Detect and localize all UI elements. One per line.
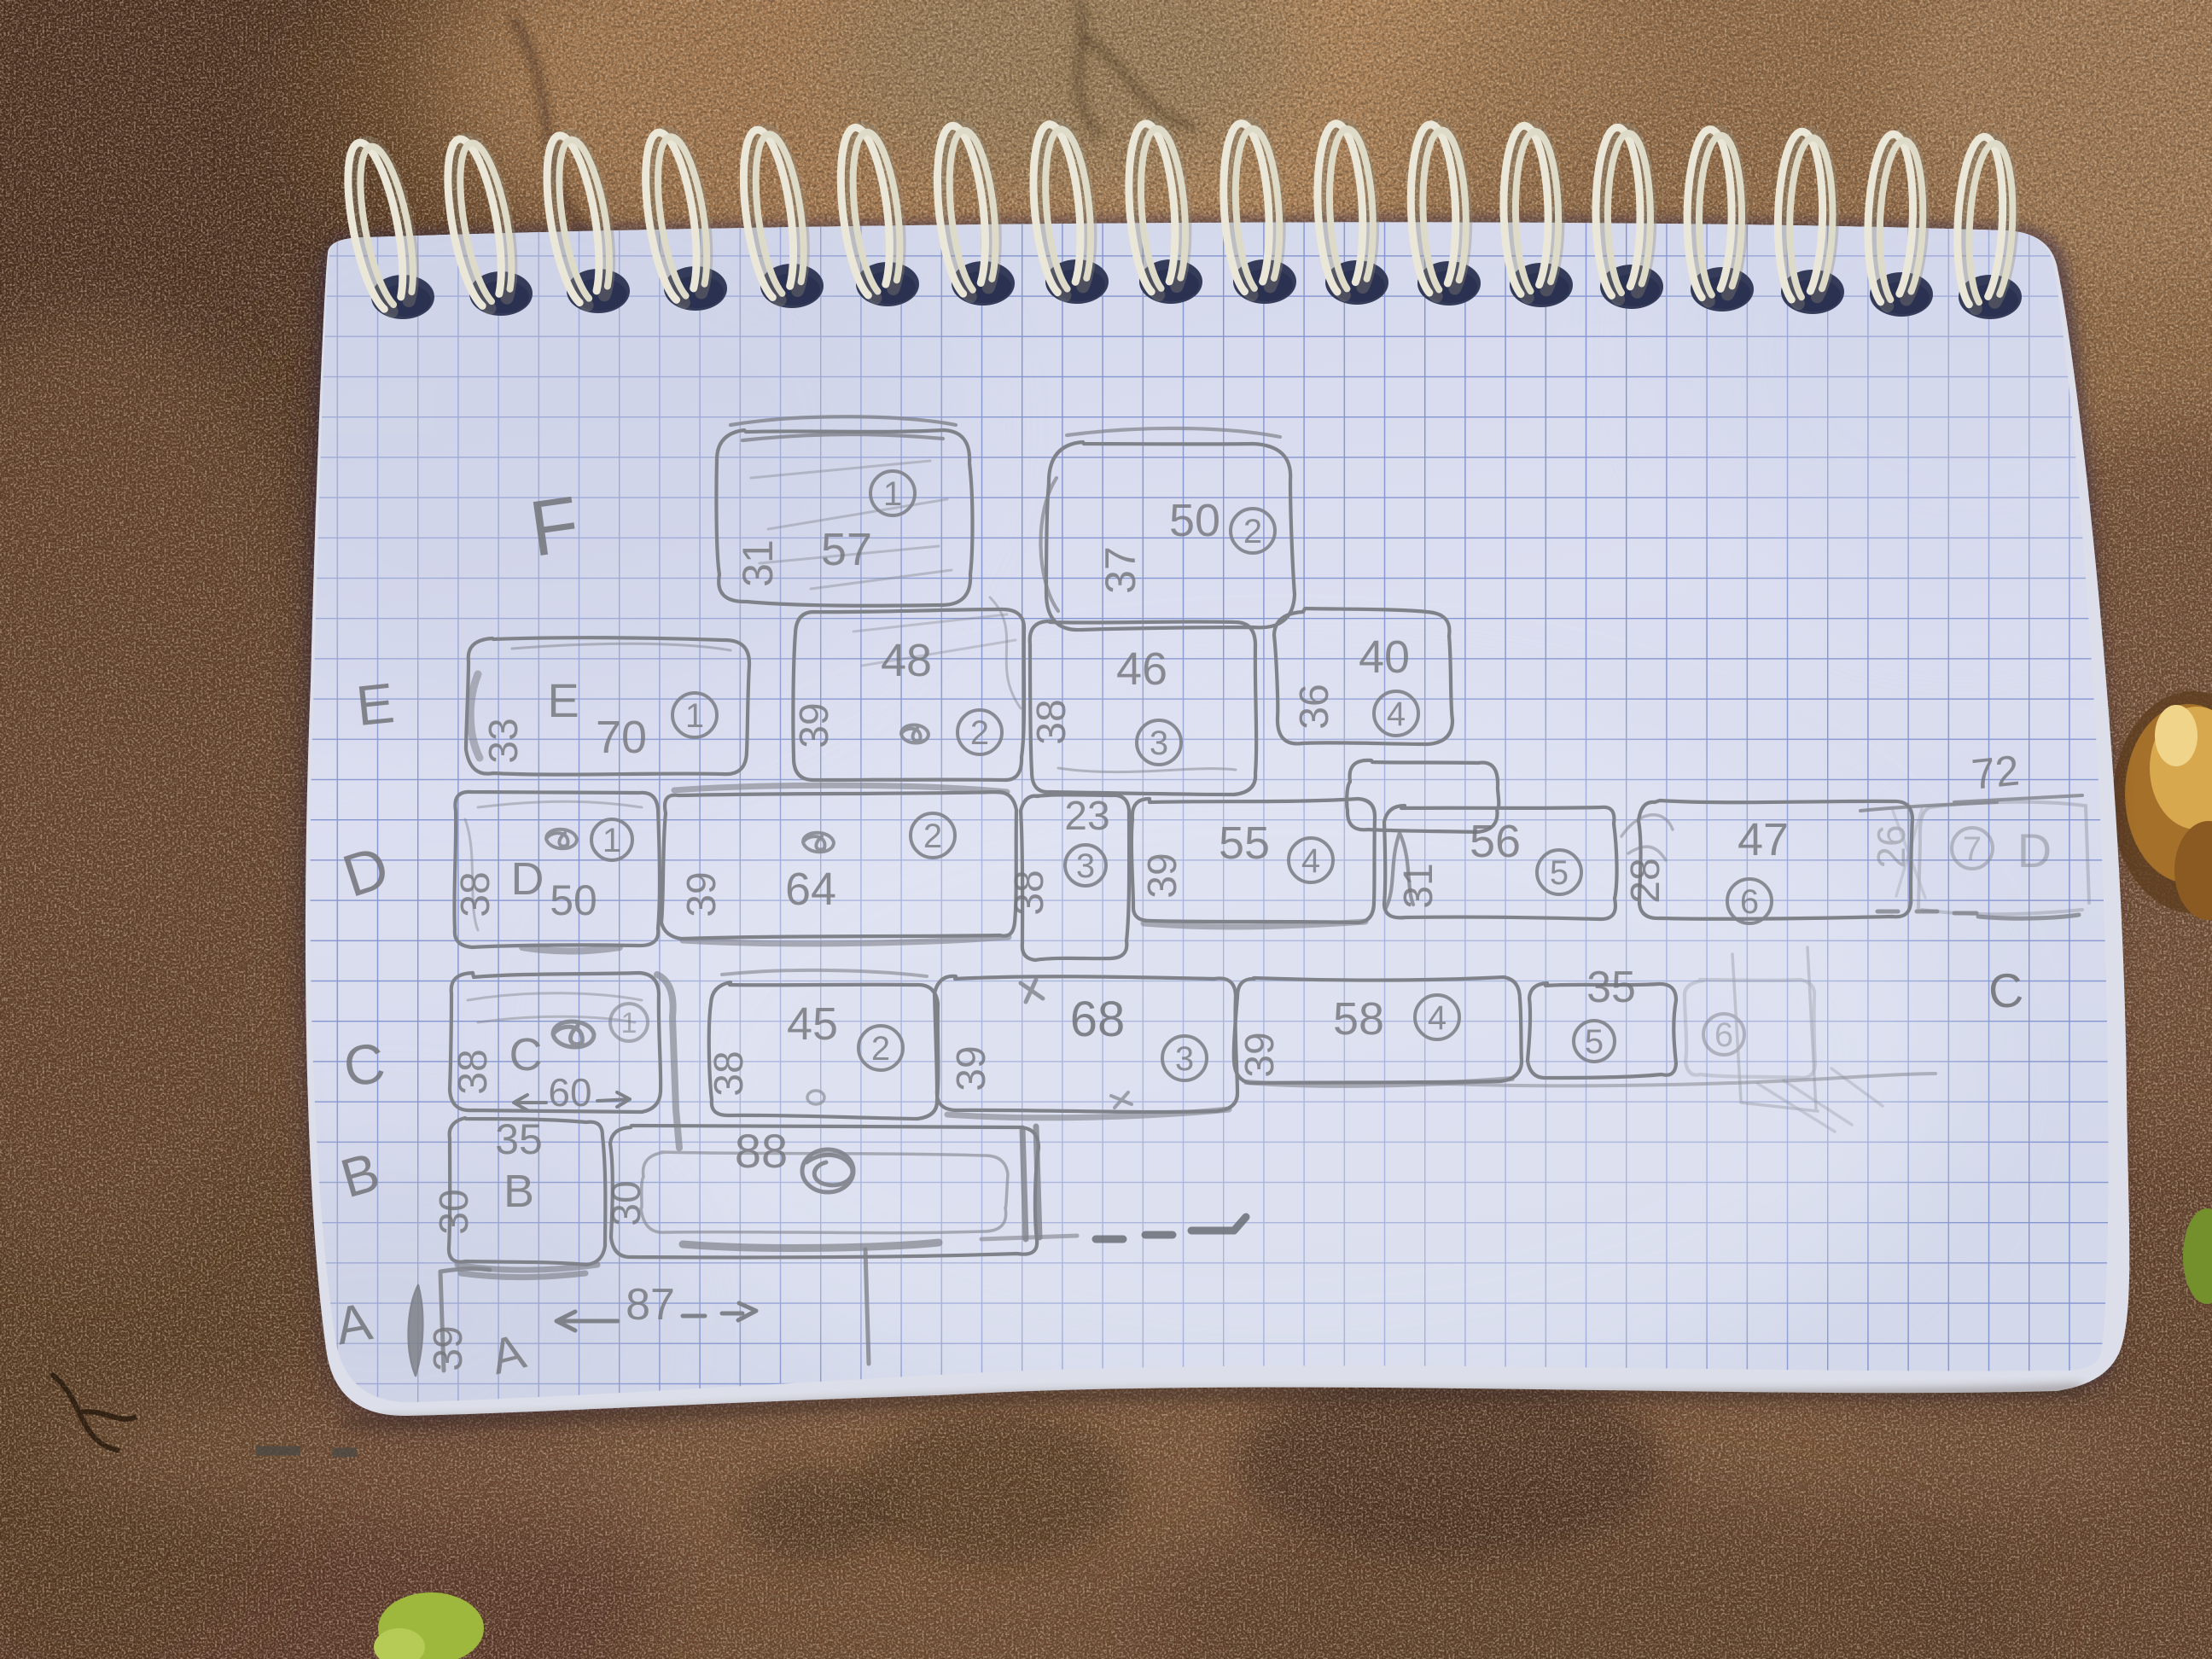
svg-text:23: 23 [1064,794,1109,839]
svg-text:30: 30 [604,1180,649,1225]
svg-text:64: 64 [785,864,836,915]
svg-text:28: 28 [1623,858,1668,903]
svg-text:45: 45 [787,998,838,1050]
svg-text:87: 87 [626,1280,675,1330]
svg-text:72: 72 [1970,746,2022,799]
svg-text:57: 57 [821,524,872,575]
svg-text:39: 39 [1237,1032,1283,1077]
svg-text:60: 60 [548,1070,591,1115]
svg-text:3: 3 [1150,725,1168,762]
svg-text:58: 58 [1333,993,1384,1045]
svg-text:3: 3 [1175,1040,1194,1078]
svg-text:4: 4 [1301,842,1320,880]
svg-text:70: 70 [596,712,647,763]
svg-text:35: 35 [495,1115,543,1163]
svg-text:47: 47 [1738,814,1789,865]
svg-text:2: 2 [923,818,942,855]
svg-text:C: C [340,1030,389,1098]
svg-text:88: 88 [735,1124,788,1178]
svg-text:B: B [504,1166,534,1217]
svg-text:50: 50 [1169,495,1220,546]
svg-text:2: 2 [970,714,989,752]
svg-text:5: 5 [1550,854,1569,892]
svg-text:31: 31 [1396,863,1441,908]
svg-text:35: 35 [1586,963,1636,1012]
svg-text:C: C [1986,962,2025,1018]
svg-text:39: 39 [1140,853,1185,898]
svg-text:E: E [547,673,579,727]
svg-text:30: 30 [432,1189,477,1234]
svg-text:31: 31 [734,539,782,587]
svg-text:56: 56 [1470,816,1521,867]
svg-text:E: E [353,671,398,737]
svg-text:3: 3 [1076,847,1095,885]
svg-text:C: C [509,1029,543,1080]
svg-text:1: 1 [685,697,704,735]
svg-text:37: 37 [1097,546,1144,594]
svg-text:1: 1 [883,475,902,513]
svg-text:39: 39 [792,702,837,748]
svg-text:6: 6 [1740,883,1759,921]
svg-text:4: 4 [1428,999,1447,1037]
svg-text:46: 46 [1116,643,1167,695]
svg-text:4: 4 [1387,696,1406,733]
svg-text:1: 1 [621,1007,637,1039]
svg-text:40: 40 [1359,632,1410,683]
svg-text:26: 26 [1869,824,1913,868]
svg-text:D: D [511,853,544,905]
svg-text:38: 38 [1029,699,1074,744]
svg-text:39: 39 [679,871,725,917]
svg-text:7: 7 [1963,830,1982,868]
svg-text:39: 39 [426,1325,471,1371]
svg-text:50: 50 [550,876,597,924]
svg-text:38: 38 [707,1051,752,1096]
svg-text:36: 36 [1292,684,1337,729]
svg-text:2: 2 [871,1030,890,1068]
svg-text:38: 38 [1007,870,1052,915]
svg-text:39: 39 [949,1045,994,1091]
svg-text:2: 2 [1243,513,1262,550]
svg-text:38: 38 [451,1049,496,1094]
svg-text:38: 38 [453,871,498,917]
svg-text:55: 55 [1219,818,1270,869]
svg-text:33: 33 [481,718,527,763]
svg-text:6: 6 [1714,1016,1733,1054]
svg-text:68: 68 [1070,992,1126,1047]
svg-text:48: 48 [881,635,932,686]
svg-text:1: 1 [602,822,621,859]
svg-text:D: D [2017,824,2052,877]
svg-text:5: 5 [1585,1023,1604,1061]
